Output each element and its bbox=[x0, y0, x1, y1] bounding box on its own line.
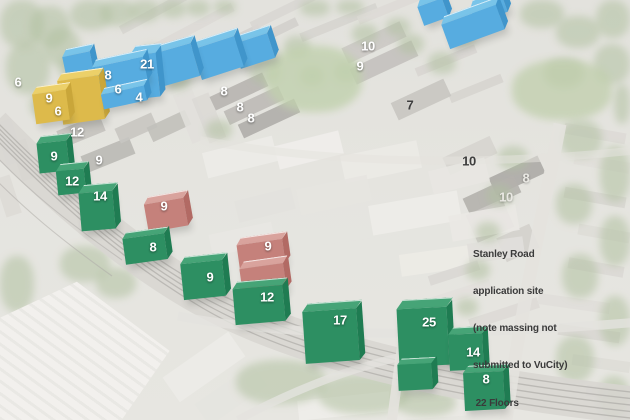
block-face bbox=[302, 308, 359, 364]
annotation-line: application site bbox=[473, 286, 567, 298]
floor-count-label: 9 bbox=[161, 199, 168, 214]
annotation-stanley-road: Stanley Road application site (note mass… bbox=[473, 224, 567, 420]
massing-block-green[interactable] bbox=[233, 285, 286, 325]
floor-count-label: 9 bbox=[357, 59, 364, 74]
block-face bbox=[233, 285, 286, 325]
floor-count-label: 10 bbox=[462, 154, 476, 169]
block-face bbox=[180, 260, 226, 300]
floor-count-label: 6 bbox=[15, 75, 22, 90]
floor-count-label: 9 bbox=[265, 239, 272, 254]
floor-count-label: 6 bbox=[55, 104, 62, 119]
floor-count-label: 10 bbox=[361, 39, 375, 54]
floor-count-label: 8 bbox=[221, 84, 228, 99]
floor-count-label: 17 bbox=[333, 313, 347, 328]
floor-count-label: 6 bbox=[115, 82, 122, 97]
floor-count-label: 12 bbox=[70, 125, 84, 140]
floor-count-label: 7 bbox=[407, 98, 414, 113]
floor-count-label: 8 bbox=[248, 111, 255, 126]
floor-count-label: 8 bbox=[150, 240, 157, 255]
floor-count-label: 9 bbox=[46, 91, 53, 106]
floor-count-label: 14 bbox=[93, 189, 107, 204]
massing-block-green[interactable] bbox=[302, 308, 359, 364]
city-model-viewport[interactable]: 6968621412988810971081091214989912172514… bbox=[0, 0, 630, 420]
floor-count-label: 21 bbox=[140, 57, 154, 72]
annotation-line: Stanley Road bbox=[473, 249, 567, 261]
annotation-line: (note massing not bbox=[473, 323, 567, 335]
floor-count-label: 8 bbox=[237, 100, 244, 115]
floor-count-label: 9 bbox=[207, 270, 214, 285]
floor-count-label: 9 bbox=[96, 153, 103, 168]
annotation-line: 22 Floors bbox=[473, 398, 567, 410]
floor-count-label: 10 bbox=[499, 190, 513, 205]
road-industrial bbox=[200, 140, 630, 161]
floor-count-label: 8 bbox=[523, 171, 530, 186]
floor-count-label: 25 bbox=[422, 315, 436, 330]
floor-count-label: 12 bbox=[260, 290, 274, 305]
block-face bbox=[397, 363, 432, 391]
floor-count-label: 4 bbox=[136, 90, 143, 105]
floor-count-label: 8 bbox=[105, 68, 112, 83]
massing-block-green[interactable] bbox=[397, 363, 432, 391]
floor-count-label: 9 bbox=[51, 149, 58, 164]
massing-block-green[interactable] bbox=[180, 260, 226, 300]
annotation-line: submitted to VuCity) bbox=[473, 360, 567, 372]
floor-count-label: 12 bbox=[65, 174, 79, 189]
